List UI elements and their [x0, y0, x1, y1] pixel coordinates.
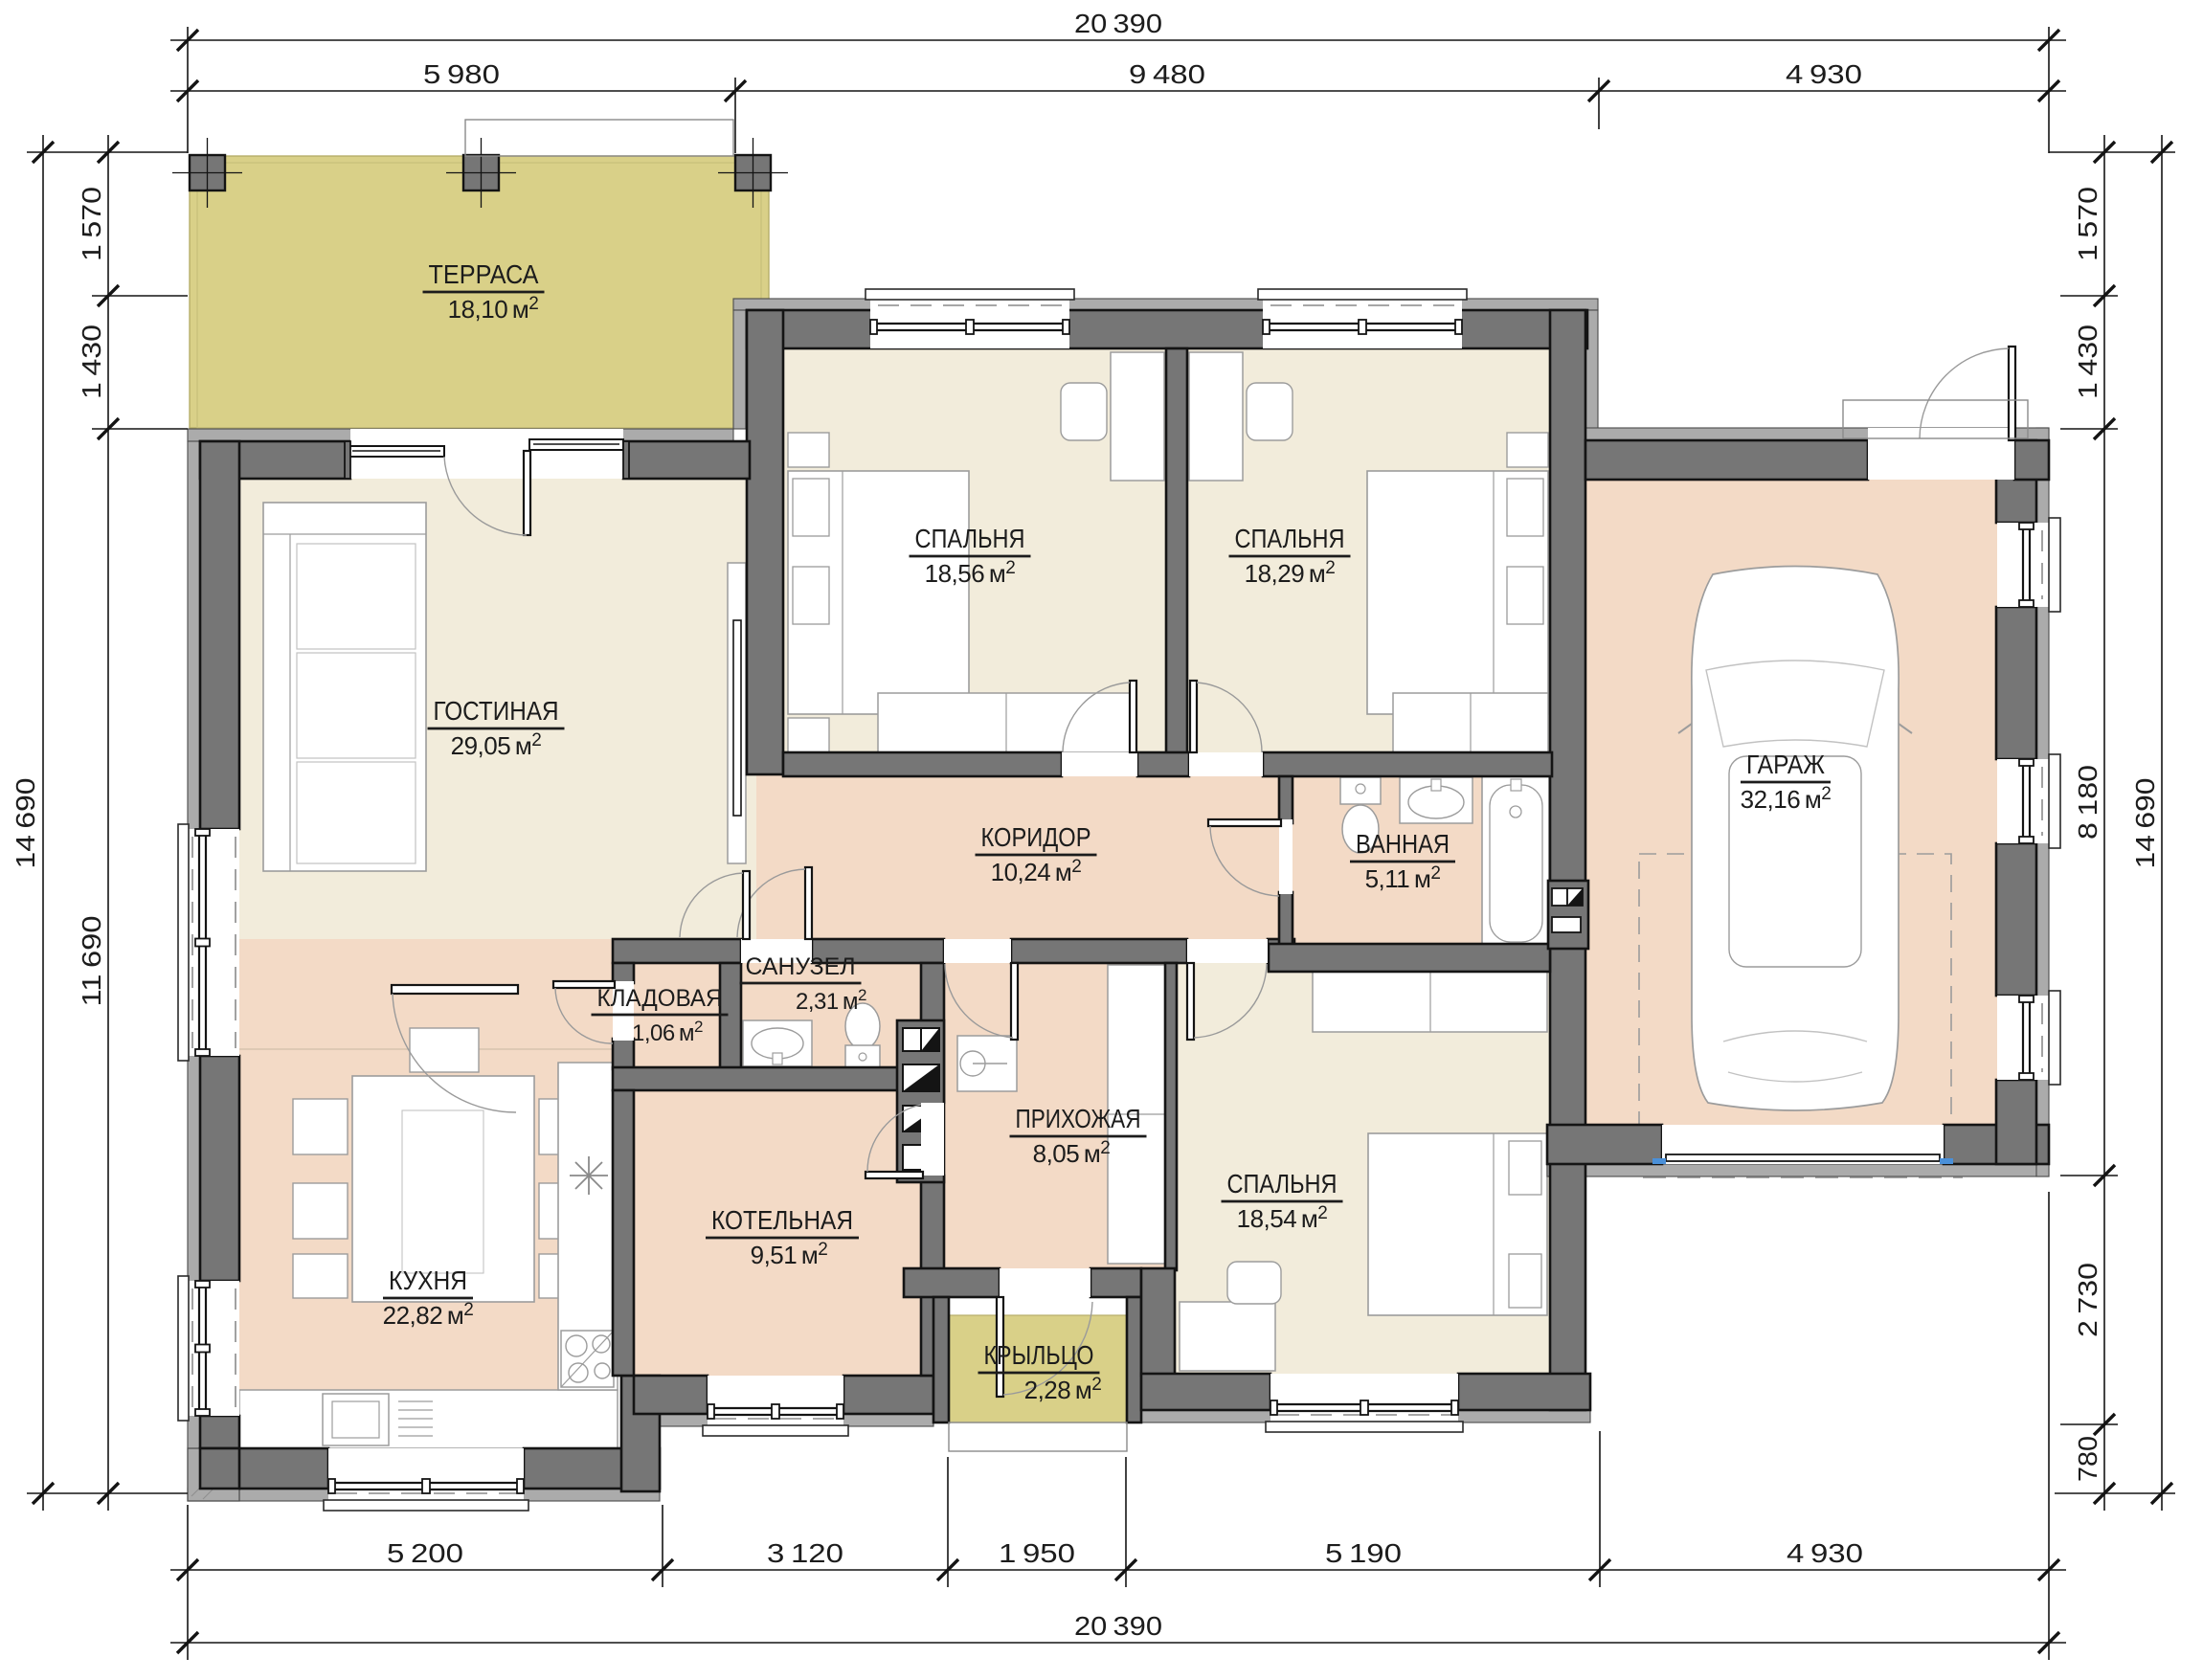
svg-text:КОТЕЛЬНАЯ: КОТЕЛЬНАЯ: [711, 1205, 853, 1235]
svg-text:10,24 м2: 10,24 м2: [991, 857, 1082, 886]
svg-text:3 120: 3 120: [767, 1538, 843, 1568]
svg-text:5 190: 5 190: [1325, 1538, 1402, 1568]
svg-text:20 390: 20 390: [1074, 9, 1162, 38]
svg-text:ВАННАЯ: ВАННАЯ: [1356, 829, 1450, 859]
svg-text:29,05 м2: 29,05 м2: [451, 730, 542, 760]
svg-text:СПАЛЬНЯ: СПАЛЬНЯ: [915, 524, 1025, 553]
svg-text:ПРИХОЖАЯ: ПРИХОЖАЯ: [1016, 1104, 1141, 1133]
svg-text:ТЕРРАСА: ТЕРРАСА: [429, 259, 539, 289]
svg-text:1,06 м2: 1,06 м2: [632, 1018, 703, 1046]
svg-text:11 690: 11 690: [77, 916, 106, 1007]
svg-text:14 690: 14 690: [11, 778, 40, 869]
svg-text:1 570: 1 570: [77, 187, 106, 261]
svg-text:32,16 м2: 32,16 м2: [1741, 784, 1832, 814]
svg-text:14 690: 14 690: [2130, 778, 2160, 869]
svg-text:5,11 м2: 5,11 м2: [1365, 863, 1441, 893]
svg-text:КРЫЛЬЦО: КРЫЛЬЦО: [984, 1340, 1094, 1370]
svg-text:КУХНЯ: КУХНЯ: [389, 1266, 467, 1295]
svg-text:20 390: 20 390: [1074, 1611, 1162, 1641]
svg-text:22,82 м2: 22,82 м2: [383, 1300, 474, 1330]
svg-text:САНУЗЕЛ: САНУЗЕЛ: [746, 953, 856, 980]
svg-text:КЛАДОВАЯ: КЛАДОВАЯ: [597, 985, 723, 1012]
svg-text:780: 780: [2073, 1436, 2102, 1482]
svg-text:18,56 м2: 18,56 м2: [925, 558, 1016, 588]
svg-text:СПАЛЬНЯ: СПАЛЬНЯ: [1235, 524, 1345, 553]
svg-text:КОРИДОР: КОРИДОР: [981, 822, 1091, 852]
svg-text:1 570: 1 570: [2073, 187, 2102, 261]
svg-text:ГОСТИНАЯ: ГОСТИНАЯ: [434, 696, 559, 726]
svg-text:2,31 м2: 2,31 м2: [796, 986, 866, 1015]
svg-text:1 430: 1 430: [77, 325, 106, 399]
svg-text:5 200: 5 200: [387, 1538, 463, 1568]
svg-text:1 430: 1 430: [2073, 325, 2102, 399]
svg-text:8,05 м2: 8,05 м2: [1033, 1138, 1111, 1168]
svg-text:4 930: 4 930: [1787, 1538, 1863, 1568]
svg-text:2,28 м2: 2,28 м2: [1024, 1375, 1102, 1404]
svg-text:18,54 м2: 18,54 м2: [1237, 1203, 1328, 1233]
svg-text:СПАЛЬНЯ: СПАЛЬНЯ: [1227, 1169, 1338, 1198]
svg-text:2 730: 2 730: [2073, 1263, 2102, 1337]
svg-text:1 950: 1 950: [999, 1538, 1075, 1568]
svg-text:ГАРАЖ: ГАРАЖ: [1746, 750, 1825, 779]
svg-text:4 930: 4 930: [1786, 59, 1862, 89]
svg-text:9,51 м2: 9,51 м2: [751, 1240, 828, 1269]
svg-text:18,10 м2: 18,10 м2: [448, 294, 539, 324]
svg-text:18,29 м2: 18,29 м2: [1245, 558, 1336, 588]
svg-text:5 980: 5 980: [423, 59, 500, 89]
svg-text:9 480: 9 480: [1129, 59, 1205, 89]
svg-text:8 180: 8 180: [2073, 765, 2102, 840]
